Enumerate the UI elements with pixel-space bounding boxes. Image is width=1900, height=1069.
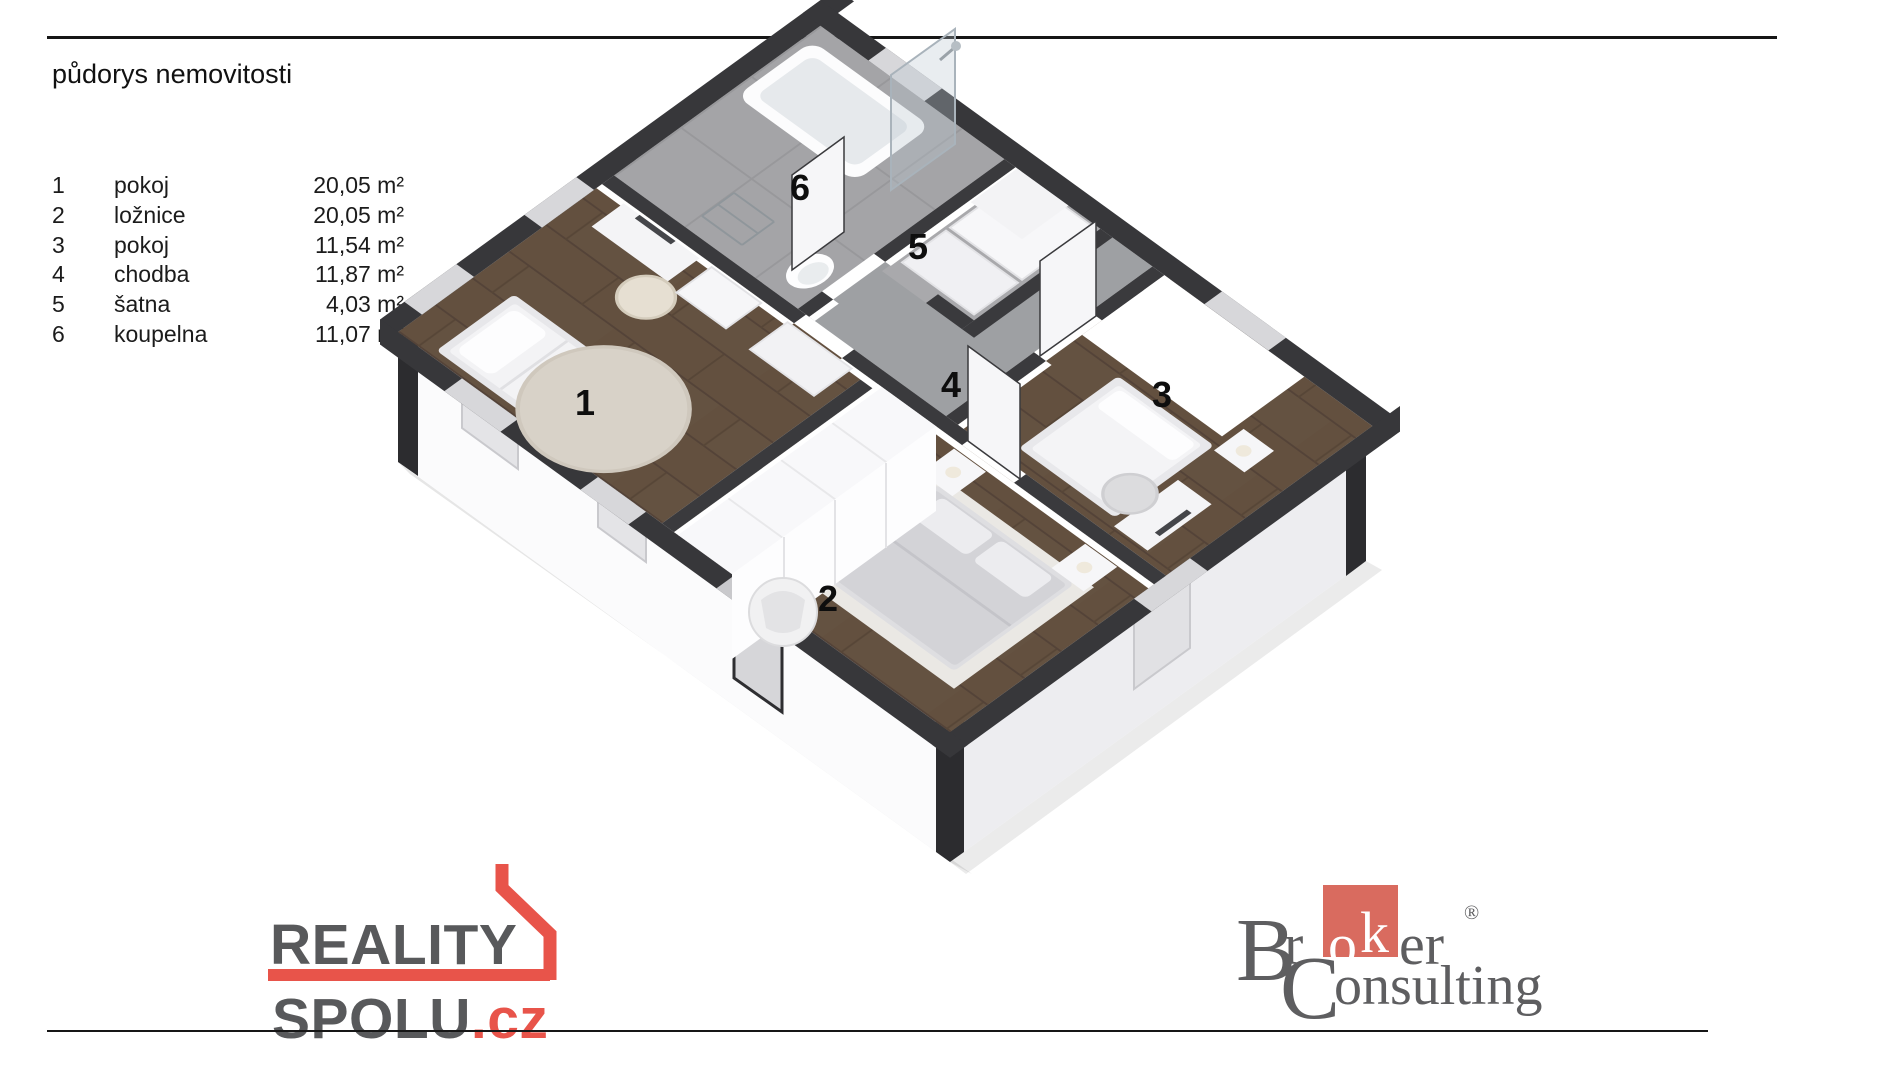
bottom-divider-line bbox=[47, 1030, 1708, 1032]
legend-room-number: 1 bbox=[52, 172, 114, 202]
floor-plan-isometric: 1 2 3 4 5 6 bbox=[380, 0, 1400, 900]
broker-consulting-logo: B r o k er ® C onsulting bbox=[1236, 876, 1716, 1046]
legend-room-number: 2 bbox=[52, 202, 114, 232]
consulting-letter-c: C bbox=[1280, 944, 1340, 1034]
legend-room-number: 3 bbox=[52, 232, 114, 262]
room-label-3: 3 bbox=[1152, 374, 1172, 415]
reality-logo-word: REALITY bbox=[270, 917, 517, 974]
consulting-letters: onsulting bbox=[1334, 958, 1542, 1014]
reality-spolu-logo: REALITY SPOLU.cz bbox=[262, 858, 562, 1058]
page: půdorys nemovitosti 1 pokoj 20,05 m² 2 l… bbox=[0, 0, 1900, 1069]
legend-room-name: šatna bbox=[114, 291, 256, 321]
legend-room-number: 4 bbox=[52, 261, 114, 291]
legend-room-name: pokoj bbox=[114, 172, 256, 202]
legend-room-number: 5 bbox=[52, 291, 114, 321]
legend-room-name: pokoj bbox=[114, 232, 256, 262]
page-title: půdorys nemovitosti bbox=[52, 58, 292, 90]
room-label-6: 6 bbox=[790, 167, 810, 208]
room-legend: 1 pokoj 20,05 m² 2 ložnice 20,05 m² 3 po… bbox=[52, 172, 404, 351]
room-label-5: 5 bbox=[908, 226, 928, 267]
legend-room-number: 6 bbox=[52, 321, 114, 351]
legend-room-name: chodba bbox=[114, 261, 256, 291]
room-label-2: 2 bbox=[818, 578, 838, 619]
registered-mark: ® bbox=[1464, 903, 1479, 923]
armchair bbox=[749, 578, 817, 646]
room-label-1: 1 bbox=[575, 382, 595, 423]
spolu-logo-word: SPOLU.cz bbox=[272, 991, 548, 1048]
legend-room-name: ložnice bbox=[114, 202, 256, 232]
broker-letter-k: k bbox=[1360, 904, 1389, 962]
room-label-4: 4 bbox=[941, 364, 961, 405]
legend-room-name: koupelna bbox=[114, 321, 256, 351]
cz-tld: .cz bbox=[471, 987, 549, 1051]
